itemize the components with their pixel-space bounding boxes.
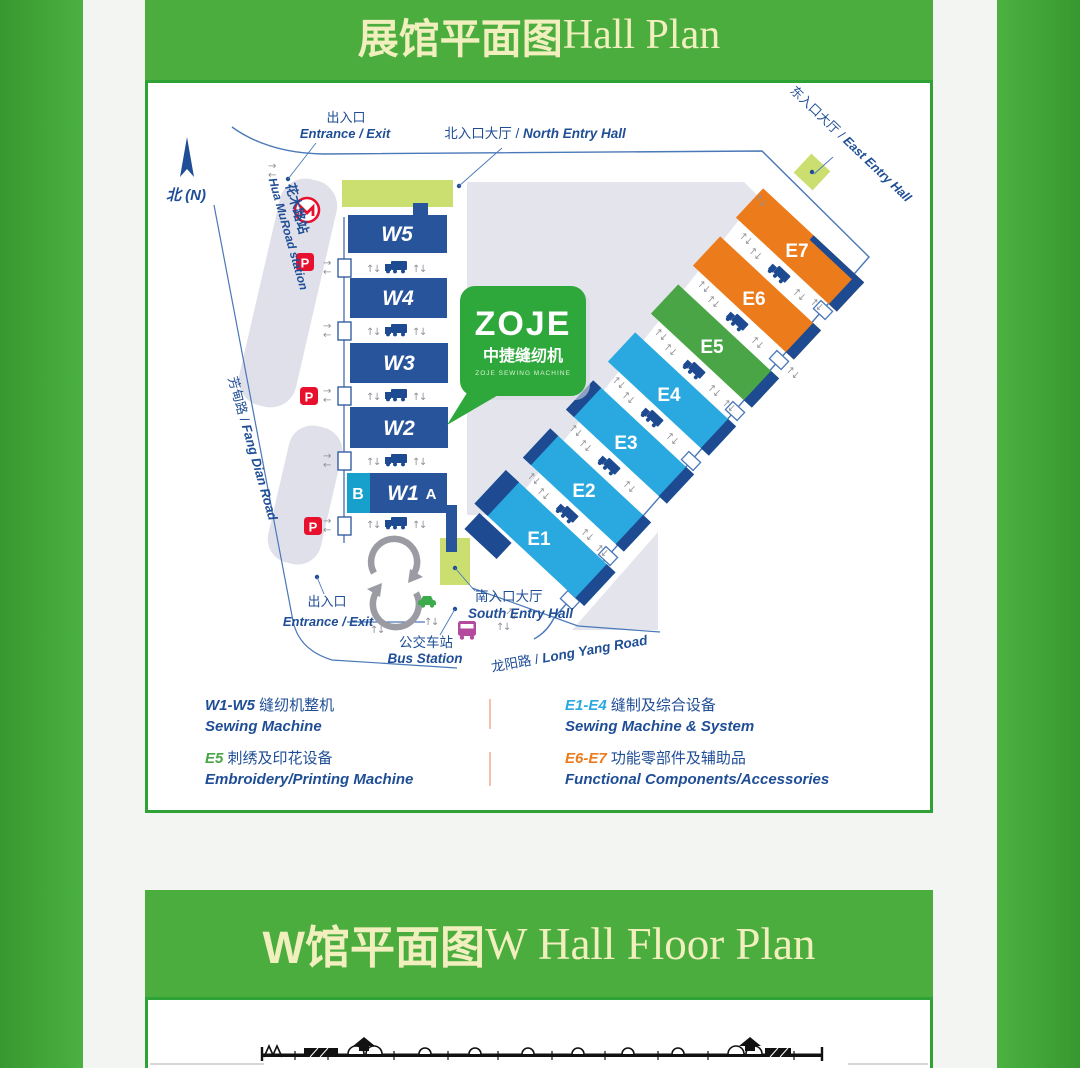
- hall-w1-label: W1: [387, 482, 419, 505]
- legend-zh: 缝纫机整机: [255, 697, 334, 714]
- hall-w4-label: W4: [382, 287, 414, 310]
- parking-road-area: [263, 421, 347, 570]
- south-entry-en: South Entry Hall: [468, 606, 573, 621]
- svg-text:P: P: [305, 390, 314, 405]
- bus-station-zh: 公交车站: [399, 634, 453, 650]
- entrance-top-en: Entrance / Exit: [300, 126, 391, 141]
- floorplan-door-arcs: [348, 1046, 762, 1054]
- longyang-road-label: 龙阳路 / Long Yang Road: [490, 632, 649, 674]
- w-hall-floor-plan-figure: [145, 997, 933, 1068]
- leader-line: [317, 577, 324, 594]
- legend-item-e5: E5 刺绣及印花设备 Embroidery/Printing Machine: [205, 748, 535, 790]
- hall-e3-label: E3: [614, 433, 637, 454]
- updown-arrow-icon: [496, 622, 511, 633]
- w-hall-floor-plan-drawing: [148, 1034, 930, 1068]
- hall-plan-figure: ↑↓ →←: [145, 80, 933, 813]
- hall-w2-label: W2: [383, 417, 415, 440]
- legend-zh: 刺绣及印花设备: [223, 750, 332, 767]
- south-link-bar: [446, 505, 457, 552]
- two-way-arrow-icon: [323, 321, 331, 341]
- legend-item-e14: E1-E4 缝制及综合设备 Sewing Machine & System: [565, 695, 895, 737]
- legend-en: Embroidery/Printing Machine: [205, 771, 413, 788]
- two-way-arrow-icon: [323, 451, 331, 471]
- svg-text:P: P: [309, 520, 318, 535]
- right-green-edge: [997, 0, 1080, 1068]
- legend-zh: 缝制及综合设备: [607, 697, 716, 714]
- legend-code: E1-E4: [565, 697, 607, 714]
- two-way-arrow-icon: [323, 516, 331, 536]
- title-zh: 展馆平面图: [358, 5, 563, 65]
- north-arrow-icon: [180, 137, 194, 177]
- title-en: W Hall Floor Plan: [485, 918, 815, 970]
- hall-e1-label: E1: [527, 529, 551, 550]
- entrance-bottom-zh: 出入口: [307, 594, 346, 609]
- legend-en: Sewing Machine: [205, 718, 322, 735]
- bus-station-en: Bus Station: [387, 651, 462, 666]
- east-entry-label: 东入口大厅 / East Entry Hall: [787, 84, 914, 205]
- entrance-top-zh: 出入口: [326, 110, 365, 125]
- legend-code: W1-W5: [205, 697, 255, 714]
- entrance-bottom-en: Entrance / Exit: [283, 614, 374, 629]
- legend-divider: [489, 752, 491, 786]
- two-way-arrow-icon: [323, 258, 331, 278]
- legend-divider: [489, 699, 491, 729]
- zoje-sub: ZOJE SEWING MACHINE: [475, 370, 571, 377]
- section-title-hall-plan: 展馆平面图 Hall Plan: [145, 0, 933, 80]
- section-title-w-hall-plan: W馆平面图 W Hall Floor Plan: [145, 890, 933, 997]
- hall-w3-label: W3: [383, 352, 415, 375]
- two-way-arrow-icon: [323, 386, 331, 406]
- hall-w1-b-label: B: [352, 486, 364, 503]
- south-entry-zh: 南入口大厅: [475, 589, 543, 604]
- north-entry-hall-shape: [342, 180, 453, 207]
- zoje-wordmark: ZOJE: [475, 305, 572, 343]
- leader-line: [288, 143, 316, 179]
- left-green-edge: [0, 0, 83, 1068]
- legend-code: E5: [205, 750, 223, 767]
- hall-plan-map: ↑↓ →←: [148, 83, 930, 688]
- bus-icon: [458, 621, 476, 640]
- updown-arrow-icon: [424, 617, 439, 628]
- hall-e6-label: E6: [742, 289, 765, 310]
- title-en: Hall Plan: [563, 11, 720, 59]
- north-entry-label: 北入口大厅 / North Entry Hall: [444, 126, 626, 141]
- hall-w5-notch: [413, 203, 428, 216]
- article-page: 展馆平面图 Hall Plan ↑↓ →←: [0, 0, 1080, 1068]
- legend-code: E6-E7: [565, 750, 607, 767]
- legend-item-e67: E6-E7 功能零部件及辅助品 Functional Components/Ac…: [565, 748, 895, 790]
- leader-dot: [810, 170, 814, 174]
- legend-zh: 功能零部件及辅助品: [607, 750, 746, 767]
- hall-w1-a-label: A: [426, 486, 437, 503]
- title-zh: W馆平面图: [263, 911, 485, 976]
- hall-e7-label: E7: [785, 241, 808, 262]
- hall-e2-label: E2: [572, 481, 595, 502]
- floorplan-wall: [262, 1054, 822, 1058]
- legend-en: Functional Components/Accessories: [565, 771, 829, 788]
- hall-w5-label: W5: [381, 223, 413, 246]
- legend-en: Sewing Machine & System: [565, 718, 754, 735]
- leader-line: [440, 609, 455, 635]
- parking-icon: P: [300, 387, 318, 405]
- north-label: 北 (N): [166, 187, 206, 204]
- roundabout-icon: [367, 539, 423, 627]
- hall-e4-label: E4: [657, 385, 681, 406]
- zoje-name-zh: 中捷缝纫机: [483, 346, 563, 365]
- parking-icon: P: [304, 517, 322, 535]
- hall-e5-label: E5: [700, 337, 724, 358]
- legend-item-w: W1-W5 缝纫机整机 Sewing Machine: [205, 695, 535, 737]
